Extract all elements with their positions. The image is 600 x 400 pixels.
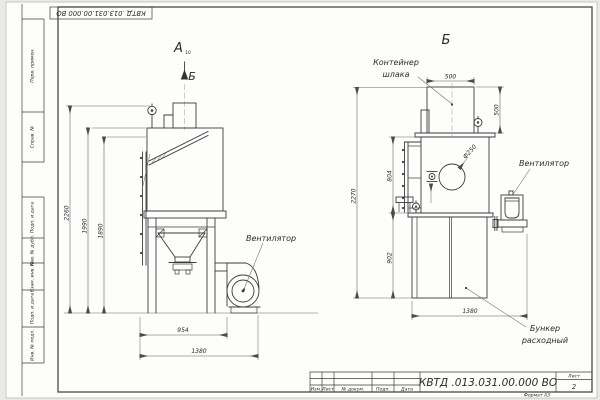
stamp-label: Инв. № подл. xyxy=(30,329,36,361)
drawing-code: КВТД .013.031.00.000 ВО xyxy=(419,377,557,389)
dim-w-total-a: 1380 xyxy=(191,348,206,355)
sheet-number: 2 xyxy=(572,383,576,391)
view-b-label: Б xyxy=(442,33,451,48)
tb-col-ndoc: № докум. xyxy=(341,386,365,392)
stamp-label: Подп. и дата xyxy=(30,202,36,233)
view-a-label: А xyxy=(173,41,183,56)
stamp-label: Справ. № xyxy=(30,126,36,149)
dim-w-container: 500 xyxy=(445,74,457,81)
container-label-2: шлака xyxy=(382,70,409,79)
tb-col-podp: Подп. xyxy=(376,386,390,392)
sheet xyxy=(6,2,597,398)
fan-label-a: Вентилятор xyxy=(246,234,296,243)
container-label-1: Контейнер xyxy=(373,58,419,67)
dim-h-total-b: 2270 xyxy=(351,188,358,203)
hopper-label-1: Бункер xyxy=(530,324,560,333)
screenshot: Перв. примен. Справ. № Подп. и дата Инв.… xyxy=(0,0,600,400)
tb-col-list: Лист xyxy=(321,386,334,392)
dim-h-hopper: 902 xyxy=(387,252,394,264)
dim-h-container: 500 xyxy=(494,104,501,116)
tb-col-izm: Изм. xyxy=(311,386,322,392)
reference-code: КВТД .013.031.00.000 ВО xyxy=(56,9,146,17)
stamp-label: Подп. и дата xyxy=(30,293,36,324)
format-note: Формат А3 xyxy=(524,393,550,399)
dim-h-mid: 804 xyxy=(387,170,394,182)
stamp-label: Взам. инв. № xyxy=(30,261,36,292)
tb-col-data: Дата xyxy=(400,386,413,392)
dim-w-total-b: 1380 xyxy=(462,308,477,315)
hopper-label-2: расходный xyxy=(521,336,568,345)
drawing-canvas: Перв. примен. Справ. № Подп. и дата Инв.… xyxy=(0,0,600,400)
dim-h-inner-a: 1890 xyxy=(98,223,105,238)
section-mark: Б xyxy=(188,70,196,83)
dim-h-body-a: 1990 xyxy=(82,218,89,233)
fan-label-b: Вентилятор xyxy=(519,159,569,168)
dim-h-total-a: 2260 xyxy=(64,205,71,220)
dim-w-frame-a: 954 xyxy=(177,327,189,334)
sheet-cell-label: Лист xyxy=(567,374,580,380)
stamp-label: Перв. примен. xyxy=(30,48,36,83)
view-a-label-sub: 10 xyxy=(185,50,191,56)
